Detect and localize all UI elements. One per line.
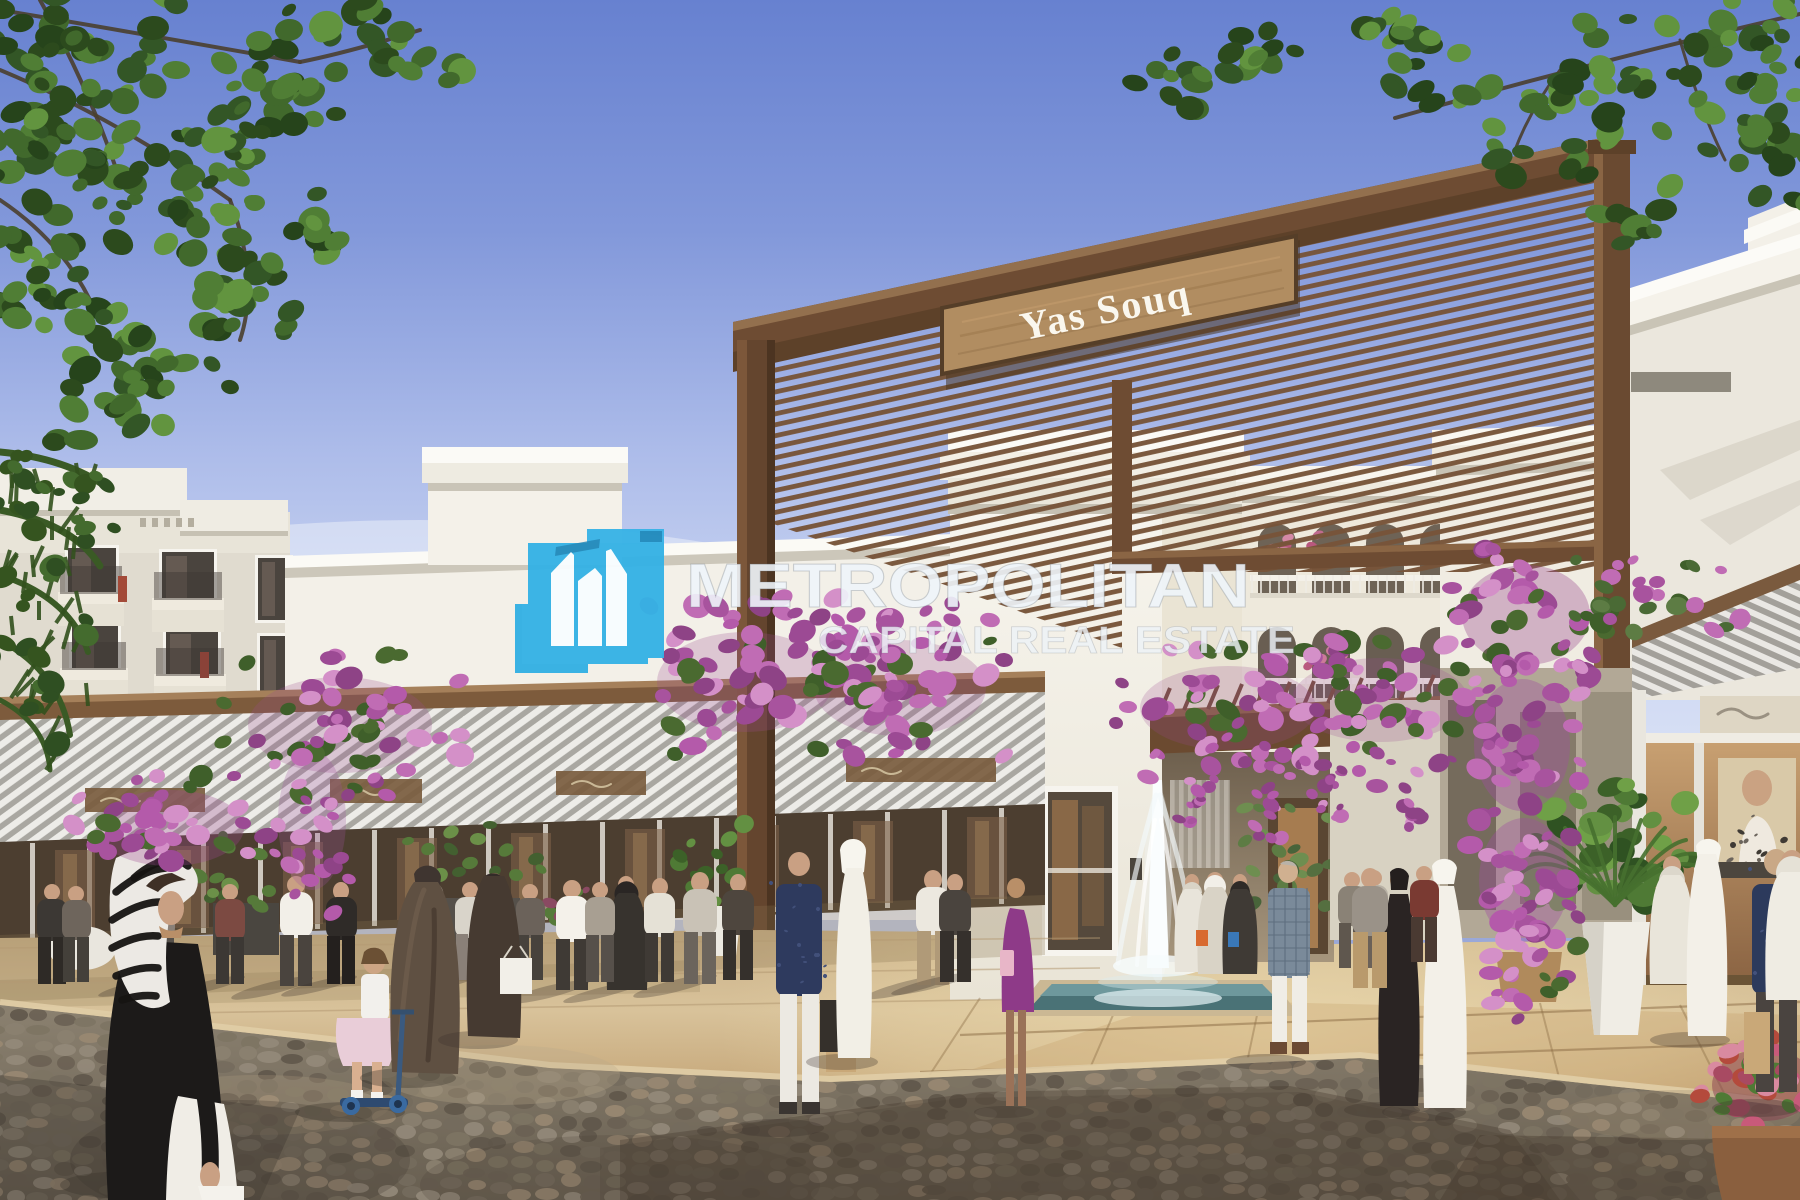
svg-text:CAPITAL REAL ESTATE: CAPITAL REAL ESTATE [818,620,1295,662]
svg-text:METROPOLITAN: METROPOLITAN [686,552,1250,621]
